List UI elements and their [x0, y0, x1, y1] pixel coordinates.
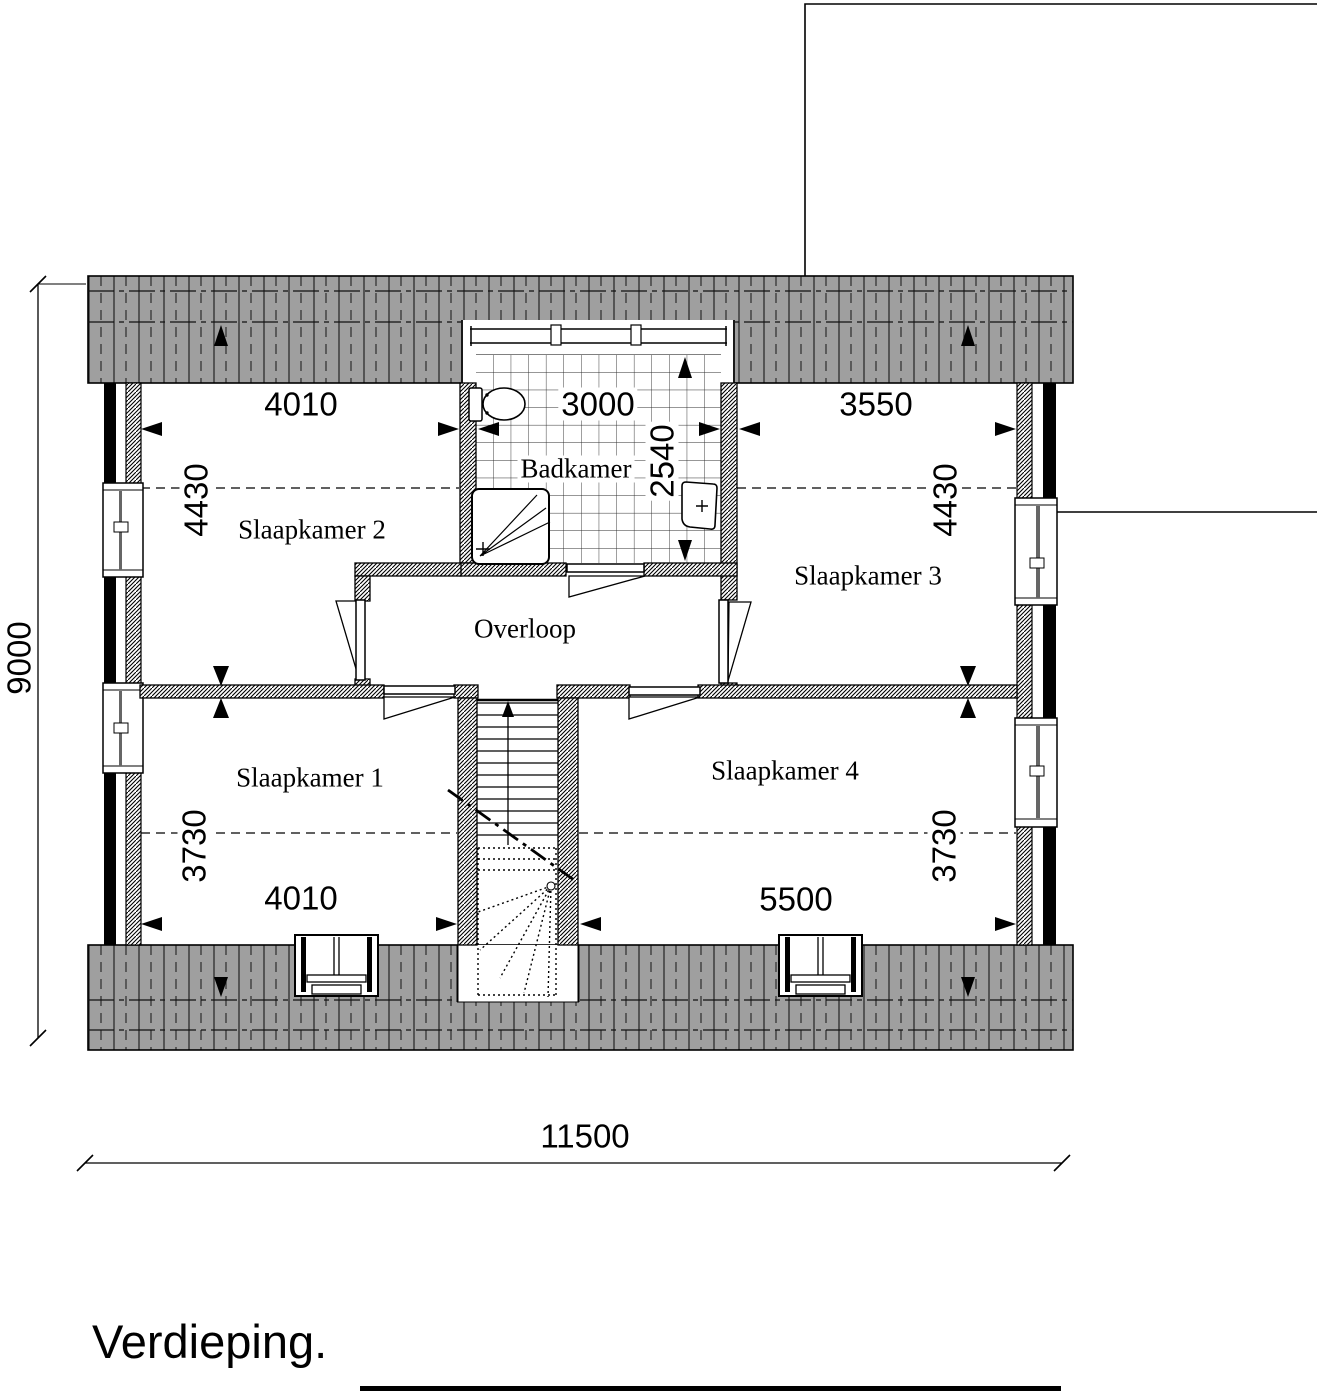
room-label-slaapkamer-3: Slaapkamer 3 [791, 563, 945, 590]
door-slaapkamer-1 [384, 686, 455, 719]
shower-icon [472, 489, 550, 564]
dimension-bathroom-depth: 2540 [646, 421, 679, 500]
dimension-upper-right-depth: 4430 [929, 460, 962, 539]
toilet-icon [469, 388, 525, 421]
door-badkamer [567, 564, 645, 597]
stairwell-notch [457, 945, 579, 1002]
title-underline [360, 1386, 1061, 1391]
room-label-slaapkamer-4: Slaapkamer 4 [708, 758, 862, 785]
window-left-upper [103, 483, 143, 577]
adjacent-building-outline [805, 4, 1317, 512]
room-label-badkamer: Badkamer [518, 456, 635, 483]
dimension-upper-left-depth: 4430 [180, 460, 213, 539]
dormer-window-2 [779, 935, 862, 996]
room-label-overloop: Overloop [471, 616, 579, 643]
door-slaapkamer-4 [629, 687, 700, 719]
window-left-lower [103, 683, 143, 773]
door-slaapkamer-3 [719, 600, 751, 683]
dimension-top-right-width: 3550 [836, 388, 915, 421]
room-label-slaapkamer-1: Slaapkamer 1 [233, 765, 387, 792]
dimension-lower-left-depth: 3730 [178, 806, 211, 885]
dimension-top-left-width: 4010 [261, 388, 340, 421]
roof-band-bottom [88, 935, 1073, 1050]
dormer-window-1 [295, 935, 378, 996]
window-right-lower [1015, 718, 1057, 827]
dimension-total-width: 11500 [537, 1120, 632, 1153]
dimension-bathroom-width: 3000 [558, 388, 637, 421]
floor-plan: Slaapkamer 2 Badkamer Slaapkamer 3 Overl… [0, 0, 1318, 1400]
door-slaapkamer-2 [336, 600, 365, 680]
dimension-lower-right-depth: 3730 [928, 806, 961, 885]
room-label-slaapkamer-2: Slaapkamer 2 [235, 517, 389, 544]
dimension-bottom-left-width: 4010 [261, 882, 340, 915]
drawing-title: Verdieping. [92, 1318, 327, 1365]
dimension-total-depth: 9000 [3, 618, 36, 697]
washbasin-icon [682, 482, 717, 529]
dimension-bottom-right-width: 5500 [756, 883, 835, 916]
floor-plan-drawing [0, 0, 1318, 1400]
window-right-upper [1015, 498, 1057, 605]
